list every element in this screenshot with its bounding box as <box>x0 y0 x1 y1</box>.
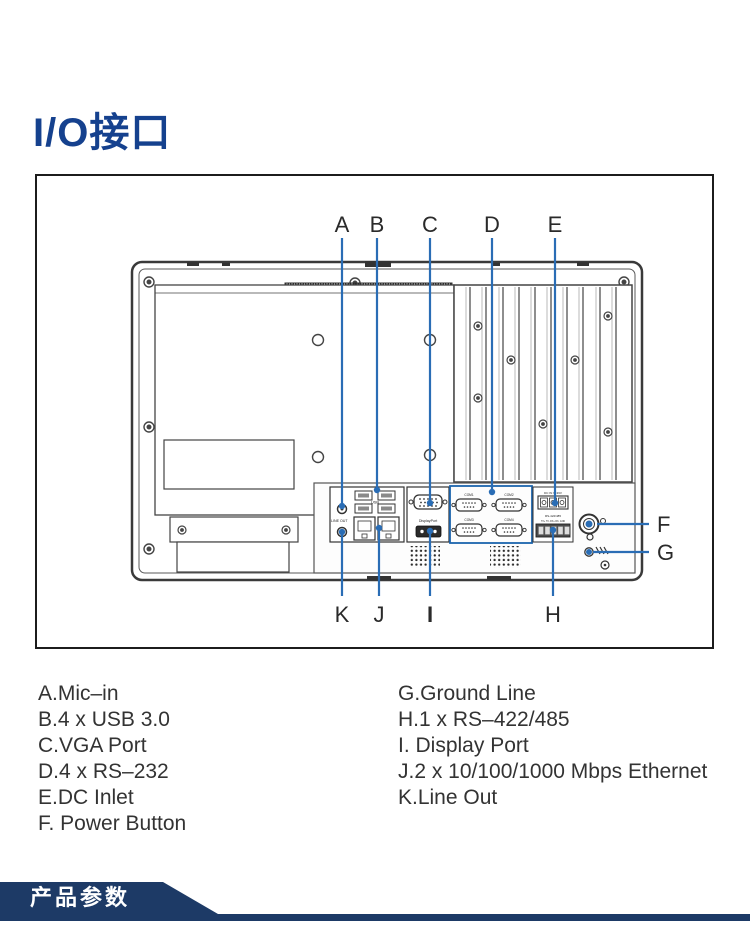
line-out-label: LINE OUT <box>331 519 348 523</box>
dc-inlet-label: DC IN 9~36V <box>544 491 562 495</box>
io-diagram-figure: USB LINE OUT <box>35 174 714 649</box>
callout-B: B <box>370 212 385 237</box>
product-params-banner-label: 产品参数 <box>30 884 210 912</box>
com1-port <box>456 499 482 511</box>
com3-port <box>456 524 482 536</box>
legend-item-a: A.Mic–in <box>38 681 186 707</box>
callout-E: E <box>548 212 563 237</box>
com1-label: COM1 <box>464 493 473 497</box>
callout-F: F <box>657 512 670 537</box>
legend-item-d: D.4 x RS–232 <box>38 759 186 785</box>
page-title: I/O接口 <box>33 110 171 156</box>
callout-C: C <box>422 212 438 237</box>
rs485-label: RS-422/485 <box>545 514 561 518</box>
legend-item-b: B.4 x USB 3.0 <box>38 707 186 733</box>
usb-label: USB <box>371 500 380 505</box>
device-rear-diagram: USB LINE OUT <box>37 176 712 647</box>
vent-dot-grid-left <box>409 546 440 568</box>
heatsink <box>454 285 632 482</box>
access-covers <box>170 517 298 572</box>
callout-A: A <box>335 212 350 237</box>
displayport-label: DisplayPort <box>419 519 437 523</box>
legend-item-k: K.Line Out <box>398 785 707 811</box>
legend-item-j: J.2 x 10/100/1000 Mbps Ethernet <box>398 759 707 785</box>
legend-item-f: F. Power Button <box>38 811 186 837</box>
com2-port <box>496 499 522 511</box>
com4-label: COM4 <box>504 518 513 522</box>
callout-K: K <box>335 602 350 627</box>
back-cover <box>155 285 454 515</box>
rs485-pins-label: TX+ TX- RX+ RX- GND <box>541 521 565 523</box>
callout-H: H <box>545 602 561 627</box>
callout-I: I <box>427 602 433 627</box>
com2-label: COM2 <box>504 493 513 497</box>
callout-G: G <box>657 540 674 565</box>
label-plate <box>164 440 294 489</box>
vent-dot-grid-right <box>490 546 521 568</box>
legend-item-g: G.Ground Line <box>398 681 707 707</box>
callout-D: D <box>484 212 500 237</box>
legend-item-c: C.VGA Port <box>38 733 186 759</box>
com3-label: COM3 <box>464 518 473 522</box>
legend-item-e: E.DC Inlet <box>38 785 186 811</box>
legend-right-column: G.Ground Line H.1 x RS–422/485 I. Displa… <box>398 681 707 811</box>
legend-left-column: A.Mic–in B.4 x USB 3.0 C.VGA Port D.4 x … <box>38 681 186 837</box>
com4-port <box>496 524 522 536</box>
legend-item-i: I. Display Port <box>398 733 707 759</box>
legend-item-h: H.1 x RS–422/485 <box>398 707 707 733</box>
io-block-vga-dp: DisplayPort <box>407 487 449 542</box>
callout-J: J <box>374 602 385 627</box>
